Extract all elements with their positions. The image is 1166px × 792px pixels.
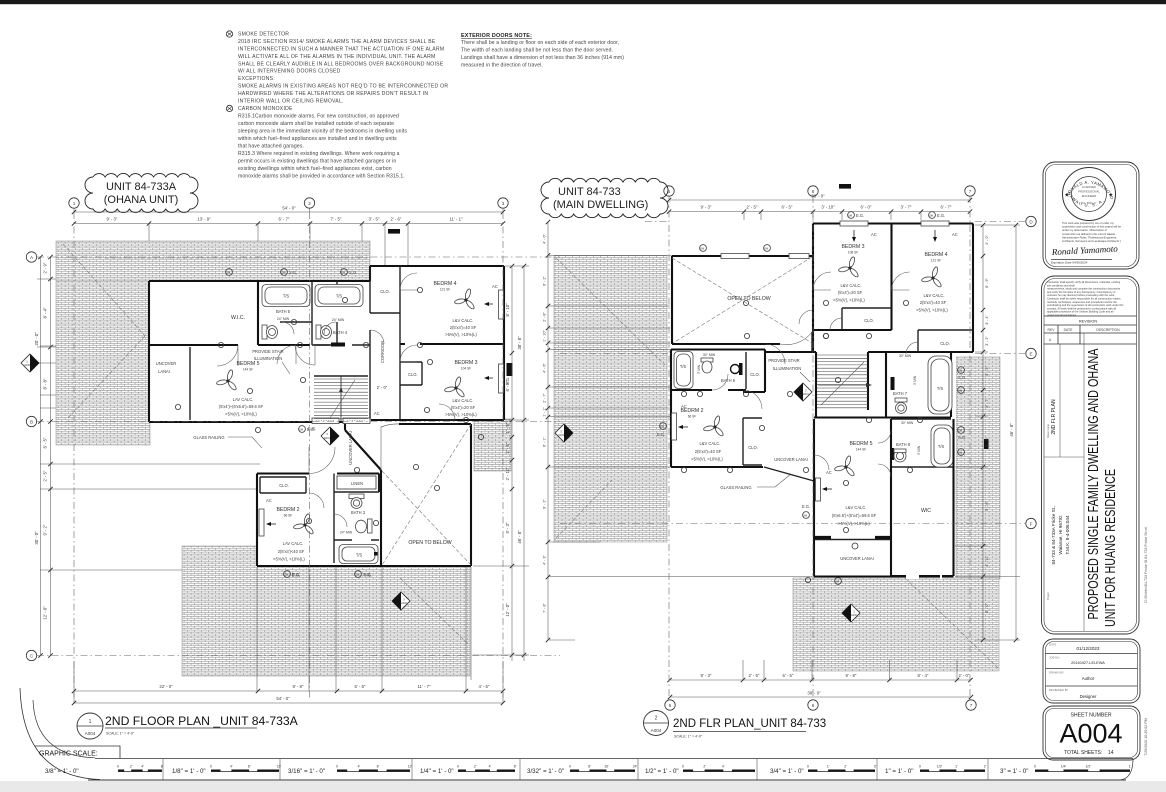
- svg-text:Administrative Rules, 'Profess: Administrative Rules, 'Professional Engi…: [1062, 235, 1117, 239]
- svg-text:2ND FLR PLAN: 2ND FLR PLAN: [1051, 399, 1057, 435]
- svg-text:1/2': 1/2': [1086, 765, 1092, 769]
- svg-text:PROVIDE STAIR: PROVIDE STAIR: [768, 358, 799, 363]
- svg-text:9' - 8": 9' - 8": [846, 673, 857, 678]
- svg-text:SM: SM: [660, 424, 664, 428]
- svg-text:9' - 2": 9' - 2": [543, 499, 547, 509]
- svg-text:This work was prepared by me o: This work was prepared by me or under my: [1062, 221, 1114, 225]
- svg-text:7' - 5": 7' - 5": [331, 217, 342, 222]
- svg-text:1': 1': [955, 765, 958, 769]
- svg-text:3' - 7": 3' - 7": [985, 398, 989, 408]
- svg-text:6' - 5": 6' - 5": [43, 437, 48, 448]
- svg-text:2' - 11": 2' - 11": [505, 467, 510, 480]
- svg-text:9' - 2": 9' - 2": [43, 524, 48, 535]
- svg-text:1/4" = 1' - 0": 1/4" = 1' - 0": [420, 768, 454, 775]
- svg-text:>5%(V), >10%(L): >5%(V), >10%(L): [445, 412, 477, 417]
- svg-text:EXCEPTIONS:: EXCEPTIONS:: [238, 76, 275, 82]
- svg-text:24': 24': [633, 765, 638, 769]
- svg-text:22' - 0": 22' - 0": [159, 684, 173, 689]
- svg-text:8' - 4": 8' - 4": [43, 307, 48, 318]
- svg-text:T/S: T/S: [356, 553, 363, 558]
- svg-text:9' - 3": 9' - 3": [701, 205, 712, 210]
- svg-text:UNIT FOR HUANG RESIDENCE: UNIT FOR HUANG RESIDENCE: [1103, 469, 1119, 627]
- svg-text:E001: E001: [324, 437, 330, 440]
- svg-text:under my observation. Observa: under my observation. Observation of: [1062, 228, 1107, 232]
- svg-text:W.I.C.: W.I.C.: [231, 315, 245, 321]
- svg-text:2' - 5": 2' - 5": [43, 470, 48, 481]
- svg-text:SCALE: 1" = 4'-0": SCALE: 1" = 4'-0": [106, 732, 135, 736]
- svg-text:AC: AC: [952, 232, 958, 237]
- svg-text:2ND FLOOR PLAN _UNIT 84-733A: 2ND FLOOR PLAN _UNIT 84-733A: [105, 714, 299, 728]
- svg-text:SM: SM: [929, 213, 933, 217]
- svg-text:6' - 9": 6' - 9": [505, 380, 510, 391]
- svg-text:PROFESSIONAL: PROFESSIONAL: [1078, 190, 1100, 194]
- svg-text:20140427-LEI-EWA: 20140427-LEI-EWA: [1071, 661, 1105, 665]
- svg-text:2' - 9": 2' - 9": [43, 262, 48, 273]
- svg-text:2' - 5": 2' - 5": [749, 673, 760, 678]
- svg-text:SMOKE DETECTOR: SMOKE DETECTOR: [238, 32, 289, 38]
- svg-text:S.G.: S.G.: [958, 435, 966, 440]
- svg-text:CLO.: CLO.: [864, 318, 874, 323]
- svg-text:S.G.: S.G.: [349, 270, 357, 275]
- svg-text:24" MIN: 24" MIN: [340, 531, 353, 535]
- svg-text:6' - 2": 6' - 2": [543, 276, 547, 286]
- svg-text:9' - 3": 9' - 3": [505, 522, 510, 533]
- svg-text:Landings shall have a dimensio: Landings shall have a dimension of not l…: [461, 55, 624, 61]
- svg-text:CLO.: CLO.: [748, 445, 758, 450]
- svg-text:F: F: [1030, 521, 1033, 526]
- svg-text:carbon monoxide alarm shall be: carbon monoxide alarm shall be installed…: [238, 121, 394, 127]
- svg-text:E: E: [1029, 351, 1032, 356]
- svg-text:2(5'x4')<40 SF: 2(5'x4')<40 SF: [278, 549, 305, 554]
- svg-text:7' - 8": 7' - 8": [543, 603, 547, 613]
- svg-text:7: 7: [969, 189, 972, 194]
- svg-text:144 SF: 144 SF: [243, 368, 253, 372]
- svg-text:AC: AC: [871, 232, 877, 237]
- svg-text:SM: SM: [958, 368, 962, 372]
- svg-text:2' - 5": 2' - 5": [747, 205, 758, 210]
- svg-text:REV: REV: [1048, 328, 1056, 332]
- svg-text:LICENSED: LICENSED: [1082, 185, 1096, 189]
- svg-text:L&V CALC.: L&V CALC.: [846, 505, 867, 510]
- svg-text:L&V CALC.: L&V CALC.: [841, 283, 862, 288]
- svg-text:6' - 5": 6' - 5": [782, 205, 793, 210]
- svg-text:3' - 7": 3' - 7": [901, 205, 912, 210]
- svg-text:No. 5810 -C: No. 5810 -C: [1082, 201, 1096, 205]
- svg-text:3/32" = 1' - 0": 3/32" = 1' - 0": [527, 768, 564, 775]
- svg-text:BEDRM 2: BEDRM 2: [276, 507, 299, 513]
- svg-text:E.G.: E.G.: [856, 213, 864, 218]
- svg-text:>5%(V), >10%(L): >5%(V), >10%(L): [225, 412, 257, 417]
- svg-text:SM: SM: [958, 450, 962, 454]
- svg-text:0: 0: [1034, 765, 1036, 769]
- svg-text:A006: A006: [558, 434, 564, 437]
- svg-text:5: 5: [669, 703, 672, 708]
- svg-text:2': 2': [703, 765, 706, 769]
- svg-text:T/S: T/S: [937, 386, 944, 391]
- svg-text:0: 0: [919, 765, 921, 769]
- svg-text:3/8" = 1' - 0": 3/8" = 1' - 0": [45, 768, 79, 775]
- svg-text:54' - 0": 54' - 0": [282, 206, 296, 211]
- svg-text:2' - 7": 2' - 7": [543, 393, 547, 403]
- svg-text:(6'x6.6')+(5'x4')=59.6 SF: (6'x6.6')+(5'x4')=59.6 SF: [832, 513, 877, 518]
- svg-text:3/4" = 1' - 0": 3/4" = 1' - 0": [770, 768, 804, 775]
- svg-text:UNCOVER LANAI: UNCOVER LANAI: [774, 457, 807, 462]
- svg-text:1: 1: [89, 719, 92, 725]
- svg-text:WIC: WIC: [921, 508, 931, 514]
- svg-text:30" MIN: 30" MIN: [899, 354, 912, 358]
- svg-text:4': 4': [722, 765, 725, 769]
- svg-text:SHALL BE CLEARLY AUDIBLE IN AL: SHALL BE CLEARLY AUDIBLE IN ALL BEDROOMS…: [238, 62, 444, 68]
- svg-text:HARDWIRED WHERE THE ALTERATION: HARDWIRED WHERE THE ALTERATIONS OR REPAI…: [238, 91, 428, 97]
- svg-text:GLASS RAILING: GLASS RAILING: [720, 485, 751, 490]
- svg-text:>5%(V), >10%(L): >5%(V), >10%(L): [273, 557, 305, 562]
- svg-text:SM: SM: [299, 427, 303, 431]
- svg-text:Expiration Date 04/30/2024: Expiration Date 04/30/2024: [1051, 261, 1088, 265]
- svg-text:A004: A004: [1059, 719, 1122, 749]
- svg-text:38' - 0": 38' - 0": [807, 691, 821, 696]
- svg-text:AC: AC: [374, 411, 380, 416]
- svg-text:8': 8': [248, 765, 251, 769]
- svg-text:OPEN TO BELOW: OPEN TO BELOW: [727, 296, 770, 302]
- svg-text:LAV CALC.: LAV CALC.: [233, 397, 254, 402]
- svg-text:L&V CALC.: L&V CALC.: [453, 318, 474, 323]
- svg-text:(5'x4')+(6'x6.6')=59.6 SF: (5'x4')+(6'x6.6')=59.6 SF: [219, 404, 264, 409]
- svg-text:0: 0: [682, 765, 684, 769]
- svg-text:8' - 4": 8' - 4": [918, 673, 929, 678]
- svg-text:16': 16': [277, 765, 282, 769]
- svg-text:66 SF: 66 SF: [688, 415, 697, 419]
- svg-text:There shall be a landing or fl: There shall be a landing or floor on eac…: [461, 40, 619, 46]
- svg-text:1" = 1' - 0": 1" = 1' - 0": [885, 768, 913, 775]
- svg-text:SM: SM: [341, 270, 345, 274]
- svg-text:BEDRM 5: BEDRM 5: [236, 361, 259, 367]
- svg-text:REVIEWED BY: REVIEWED BY: [1049, 688, 1069, 692]
- svg-text:20' - 0": 20' - 0": [34, 332, 39, 346]
- svg-text:3' - 4": 3' - 4": [985, 315, 989, 325]
- svg-text:BEDRM 5: BEDRM 5: [849, 441, 872, 447]
- svg-text:Designer: Designer: [1080, 694, 1097, 699]
- svg-text:1/2': 1/2': [937, 765, 943, 769]
- svg-text:that have attached garages.: that have attached garages.: [238, 144, 304, 150]
- svg-text:CLO.: CLO.: [279, 483, 289, 488]
- svg-text:6' - 0": 6' - 0": [861, 205, 872, 210]
- svg-text:SM: SM: [284, 572, 288, 576]
- svg-text:8' - 8": 8' - 8": [43, 378, 48, 389]
- svg-text:★: ★: [1109, 193, 1114, 199]
- svg-text:121 SF: 121 SF: [440, 288, 450, 292]
- svg-text:0: 0: [336, 765, 338, 769]
- svg-text:4': 4': [358, 765, 361, 769]
- svg-text:14: 14: [1108, 750, 1114, 756]
- svg-text:UNCOVER LANAI: UNCOVER LANAI: [840, 556, 873, 561]
- svg-text:9' - 8": 9' - 8": [293, 684, 304, 689]
- svg-text:CORRIDOR: CORRIDOR: [380, 341, 385, 363]
- svg-text:BEDRM 3: BEDRM 3: [841, 244, 864, 250]
- svg-text:W/ ALL INTERVENING DOORS CLOSE: W/ ALL INTERVENING DOORS CLOSED: [238, 69, 341, 75]
- svg-text:2': 2': [474, 765, 477, 769]
- svg-text:CLO.: CLO.: [940, 341, 950, 346]
- svg-text:permit occurs in existing dwel: permit occurs in existing dwellings that…: [238, 159, 396, 165]
- svg-text:1: 1: [73, 201, 76, 206]
- svg-text:E.G.: E.G.: [657, 432, 665, 437]
- svg-text:4' - 3": 4' - 3": [543, 555, 547, 565]
- svg-text:1' - 10": 1' - 10": [543, 329, 547, 341]
- svg-text:Project: Project: [1046, 592, 1050, 600]
- svg-text:4' - 11": 4' - 11": [985, 555, 989, 567]
- svg-text:30" MIN: 30" MIN: [703, 353, 716, 357]
- svg-text:38' - 8": 38' - 8": [517, 336, 522, 350]
- svg-text:2' - 6": 2' - 6": [391, 217, 402, 222]
- svg-text:2': 2': [130, 765, 133, 769]
- svg-text:LAV CALC.: LAV CALC.: [283, 541, 304, 546]
- svg-text:6' - 5": 6' - 5": [783, 673, 794, 678]
- svg-text:2': 2': [984, 765, 987, 769]
- svg-text:38' - 0": 38' - 0": [811, 194, 825, 199]
- svg-text:>5%(V), >10%(L): >5%(V), >10%(L): [445, 332, 477, 337]
- svg-text:INTERIOR WALL OR CEILING REMOV: INTERIOR WALL OR CEILING REMOVAL.: [238, 99, 344, 105]
- svg-text:A004: A004: [651, 728, 662, 733]
- svg-text:2: 2: [308, 201, 311, 206]
- svg-text:TOTAL SHEETS:: TOTAL SHEETS:: [1064, 750, 1102, 756]
- svg-text:6' - 7": 6' - 7": [279, 217, 290, 222]
- svg-text:6' - 8": 6' - 8": [985, 437, 989, 447]
- svg-text:2(5'x4')=40 SF: 2(5'x4')=40 SF: [450, 325, 477, 330]
- svg-text:existing dwellings within whic: existing dwellings within which fuel–fir…: [238, 166, 392, 172]
- svg-text:3': 3': [874, 765, 877, 769]
- svg-text:UNIT 84-733A: UNIT 84-733A: [106, 181, 177, 193]
- svg-text:BATH 7: BATH 7: [893, 391, 908, 396]
- svg-text:46' - 8": 46' - 8": [1009, 423, 1014, 437]
- svg-text:OPEN TO BELOW: OPEN TO BELOW: [408, 540, 451, 546]
- svg-text:DATE: DATE: [1064, 328, 1074, 332]
- svg-text:24" MIN: 24" MIN: [277, 317, 290, 321]
- svg-text:(5'x4')=20 SF: (5'x4')=20 SF: [838, 290, 863, 295]
- svg-text:>5%(V), >10%(L): >5%(V), >10%(L): [833, 298, 865, 303]
- svg-text:ILLUMINATION: ILLUMINATION: [773, 366, 801, 371]
- svg-text:SM: SM: [803, 513, 807, 517]
- svg-text:3: 3: [502, 201, 505, 206]
- svg-text:>5%(V), >10%(L): >5%(V), >10%(L): [691, 457, 723, 462]
- svg-text:2' - 0": 2' - 0": [959, 673, 970, 678]
- svg-text:1/8" = 1' - 0": 1/8" = 1' - 0": [172, 768, 206, 775]
- svg-text:Sheet name: Sheet name: [1046, 423, 1050, 438]
- svg-text:S.G.: S.G.: [958, 375, 966, 380]
- svg-text:11' - 1": 11' - 1": [449, 217, 462, 222]
- svg-text:JOB NO.: JOB NO.: [1049, 656, 1060, 660]
- svg-text:1' - 8": 1' - 8": [505, 422, 510, 433]
- svg-text:8': 8': [588, 765, 591, 769]
- svg-text:9' - 3": 9' - 3": [701, 673, 712, 678]
- svg-text:BATH 3: BATH 3: [351, 510, 366, 515]
- svg-text:E.G.: E.G.: [802, 504, 810, 509]
- svg-text:E.G.: E.G.: [937, 213, 945, 218]
- svg-text:T/S: T/S: [283, 294, 290, 299]
- svg-text:REVISION: REVISION: [1079, 320, 1097, 324]
- svg-text:4' - 5": 4' - 5": [479, 684, 490, 689]
- svg-text:8': 8': [514, 765, 517, 769]
- svg-text:7/29/2020 10:20:02 PM: 7/29/2020 10:20:02 PM: [1144, 718, 1148, 755]
- svg-text:UNIT 84-733: UNIT 84-733: [558, 186, 621, 198]
- svg-text:EXTERIOR DOORS NOTE:: EXTERIOR DOORS NOTE:: [461, 33, 532, 39]
- svg-text:T.M.K. 8-4-006:044: T.M.K. 8-4-006:044: [1065, 515, 1070, 555]
- svg-text:CLO.: CLO.: [380, 289, 390, 294]
- svg-text:AC: AC: [492, 284, 498, 289]
- svg-text:BATH 6: BATH 6: [721, 378, 736, 383]
- svg-text:monoxide alarms shall be provi: monoxide alarms shall be provided in acc…: [238, 174, 405, 180]
- svg-text:D:\Shihtin\84-733 Fricke St 84: D:\Shihtin\84-733 Fricke St 84-733 Frick…: [1144, 527, 1148, 602]
- svg-text:2ND FLR PLAN_UNIT 84-733: 2ND FLR PLAN_UNIT 84-733: [673, 718, 826, 730]
- svg-text:E001: E001: [803, 393, 809, 396]
- svg-text:A006: A006: [24, 364, 30, 367]
- svg-text:S.G.: S.G.: [289, 270, 297, 275]
- svg-text:T/S: T/S: [938, 444, 945, 449]
- svg-text:8' - 10": 8' - 10": [505, 303, 510, 317]
- svg-text:9' - 8": 9' - 8": [985, 501, 989, 511]
- svg-text:01/12/2023: 01/12/2023: [1077, 646, 1100, 651]
- svg-text:108 SF: 108 SF: [848, 251, 858, 255]
- svg-text:SMOKE ALARMS IN EXISTING AREAS: SMOKE ALARMS IN EXISTING AREAS NOT REQ'D…: [238, 84, 448, 90]
- svg-text:SM: SM: [355, 572, 359, 576]
- svg-text:Author: Author: [1082, 676, 1095, 681]
- svg-text:13' - 9": 13' - 9": [197, 217, 211, 222]
- svg-text:2' - 0": 2' - 0": [377, 385, 388, 390]
- svg-text:SM: SM: [835, 579, 839, 583]
- svg-text:DRAWN BY: DRAWN BY: [1049, 671, 1064, 675]
- svg-text:CLO.: CLO.: [750, 372, 760, 377]
- svg-text:0: 0: [569, 765, 571, 769]
- svg-text:within which fuel–fired applia: within which fuel–fired appliances are i…: [238, 136, 397, 142]
- svg-text:24" MIN: 24" MIN: [332, 318, 345, 322]
- svg-text:4': 4': [230, 765, 233, 769]
- svg-text:12' - 0": 12' - 0": [43, 606, 48, 620]
- svg-text:AC: AC: [681, 404, 687, 409]
- svg-text:construction as defined in the: construction as defined in the current H…: [1062, 232, 1115, 236]
- svg-text:GLASS RAILING: GLASS RAILING: [193, 435, 224, 440]
- svg-text:84-733 & 84-733A Fricke St: 84-733 & 84-733A Fricke St.,: [1051, 506, 1056, 565]
- svg-text:PROPOSED SINGLE FAMILY DWELLIN: PROPOSED SINGLE FAMILY DWELLING AND OHAN…: [1086, 348, 1102, 619]
- svg-text:5' - 2": 5' - 2": [985, 366, 989, 376]
- svg-text:4': 4': [489, 765, 492, 769]
- svg-text:T/S: T/S: [336, 294, 343, 299]
- svg-text:AC: AC: [266, 498, 272, 503]
- svg-text:BEDRM 4: BEDRM 4: [433, 281, 456, 287]
- svg-text:2018 IRC SECTION R314/ SMOKE A: 2018 IRC SECTION R314/ SMOKE ALARMS THE …: [238, 39, 436, 45]
- svg-text:(OHANA UNIT): (OHANA UNIT): [104, 194, 179, 206]
- svg-text:T/S: T/S: [680, 364, 687, 369]
- svg-text:0: 0: [807, 765, 809, 769]
- svg-text:104 SF: 104 SF: [461, 367, 471, 371]
- svg-text:5' - 5": 5' - 5": [355, 684, 366, 689]
- svg-text:measured in the direction of t: measured in the direction of travel.: [461, 63, 543, 69]
- svg-text:4' - 6": 4' - 6": [543, 363, 547, 373]
- svg-text:3' - 10": 3' - 10": [821, 205, 835, 210]
- svg-text:2: 2: [655, 716, 658, 722]
- svg-text:DATE: DATE: [1049, 643, 1056, 647]
- svg-text:3' MIN: 3' MIN: [913, 375, 917, 385]
- svg-text:BEDRM 4: BEDRM 4: [924, 252, 947, 258]
- svg-text:12' - 0": 12' - 0": [505, 603, 510, 617]
- svg-text:R315.1Carbon monoxide alarms.: R315.1Carbon monoxide alarms. For new co…: [238, 114, 399, 120]
- svg-text:L&V CALC.: L&V CALC.: [700, 441, 721, 446]
- svg-text:66 SF: 66 SF: [284, 514, 293, 518]
- svg-text:WILL ACTIVATE ALL OF THE ALARM: WILL ACTIVATE ALL OF THE ALARMS IN THE I…: [238, 54, 436, 60]
- svg-text:SM: SM: [226, 270, 230, 274]
- svg-text:sleeping area in the immediate: sleeping area in the immediate vicinity …: [238, 129, 407, 135]
- svg-text:11' - 7": 11' - 7": [417, 684, 430, 689]
- svg-text:supervision and construction o: supervision and construction of this pro…: [1062, 225, 1122, 229]
- svg-text:121 SF: 121 SF: [931, 259, 941, 263]
- svg-text:3' MIN: 3' MIN: [917, 445, 921, 455]
- svg-text:0: 0: [117, 765, 119, 769]
- svg-text:5: 5: [668, 189, 671, 194]
- svg-text:3' MIN: 3' MIN: [697, 364, 701, 374]
- svg-text:SM: SM: [848, 213, 852, 217]
- svg-text:Waianae, HI 96792: Waianae, HI 96792: [1058, 515, 1063, 555]
- svg-text:2' - 8": 2' - 8": [543, 312, 547, 322]
- svg-text:1/4': 1/4': [1061, 765, 1067, 769]
- svg-text:4': 4': [141, 765, 144, 769]
- svg-text:SM: SM: [764, 246, 768, 250]
- svg-text:CARBON MONOXIDE: CARBON MONOXIDE: [238, 106, 293, 112]
- svg-text:UNCOVER LANAI: UNCOVER LANAI: [348, 431, 353, 464]
- svg-text:3" = 1' - 0": 3" = 1' - 0": [1000, 768, 1028, 775]
- svg-text:SM: SM: [958, 388, 962, 392]
- svg-text:1': 1': [1129, 765, 1132, 769]
- svg-text:Architects, Surveyors and Land: Architects, Surveyors and Landscape Arch…: [1062, 239, 1121, 243]
- svg-text:6' - 1": 6' - 1": [543, 437, 547, 447]
- svg-text:A006: A006: [851, 614, 857, 617]
- svg-text:A004: A004: [85, 731, 96, 736]
- svg-text:2' - 6": 2' - 6": [505, 442, 510, 453]
- svg-text:The width of each landing shal: The width of each landing shall be not l…: [461, 48, 613, 54]
- svg-text:PROVIDE STAIR: PROVIDE STAIR: [252, 349, 283, 354]
- svg-text:6' - 7": 6' - 7": [941, 205, 952, 210]
- svg-text:A006: A006: [401, 602, 407, 605]
- svg-text:2(5'x4')=40 SF: 2(5'x4')=40 SF: [695, 449, 722, 454]
- svg-text:INTERCONNECTED IN SUCH A MANNE: INTERCONNECTED IN SUCH A MANNER THAT THE…: [238, 47, 444, 53]
- svg-text:4' - 0": 4' - 0": [985, 235, 989, 245]
- svg-text:2(5'x4')=40 SF: 2(5'x4')=40 SF: [920, 300, 947, 305]
- svg-text:SM: SM: [281, 270, 285, 274]
- svg-text:54' - 0": 54' - 0": [276, 696, 290, 701]
- svg-text:16': 16': [604, 765, 609, 769]
- svg-text:30" MIN: 30" MIN: [901, 421, 914, 425]
- svg-text:LANAI: LANAI: [158, 369, 170, 374]
- svg-text:UNCOVER: UNCOVER: [156, 361, 177, 366]
- svg-text:★: ★: [1065, 193, 1070, 199]
- svg-text:1' - 1": 1' - 1": [543, 407, 547, 417]
- svg-text:(MAIN DWELLING): (MAIN DWELLING): [553, 199, 648, 211]
- svg-text:4' - 0": 4' - 0": [543, 234, 547, 244]
- svg-text:SM: SM: [700, 246, 704, 250]
- svg-text:(5'x4')=20 SF: (5'x4')=20 SF: [451, 405, 476, 410]
- svg-text:>5%(V), >10%(L): >5%(V), >10%(L): [916, 308, 948, 313]
- svg-text:8' - 0": 8' - 0": [985, 603, 989, 613]
- svg-text:DESCRIPTION: DESCRIPTION: [1096, 328, 1120, 332]
- svg-text:3' - 5": 3' - 5": [369, 217, 380, 222]
- svg-text:S.G.: S.G.: [364, 573, 372, 578]
- svg-text:BEDRM 3: BEDRM 3: [454, 360, 477, 366]
- svg-text:0: 0: [457, 765, 459, 769]
- svg-text:ENGINEER: ENGINEER: [1082, 194, 1097, 198]
- svg-text:AC: AC: [826, 470, 832, 475]
- svg-text:R315.3 Where required in exist: R315.3 Where required in existing dwelli…: [238, 151, 400, 157]
- svg-text:L&V CALC.: L&V CALC.: [924, 293, 945, 298]
- svg-text:0: 0: [210, 765, 212, 769]
- svg-text:7: 7: [970, 703, 973, 708]
- svg-text:3/16" = 1' - 0": 3/16" = 1' - 0": [288, 768, 325, 775]
- svg-text:8': 8': [377, 765, 380, 769]
